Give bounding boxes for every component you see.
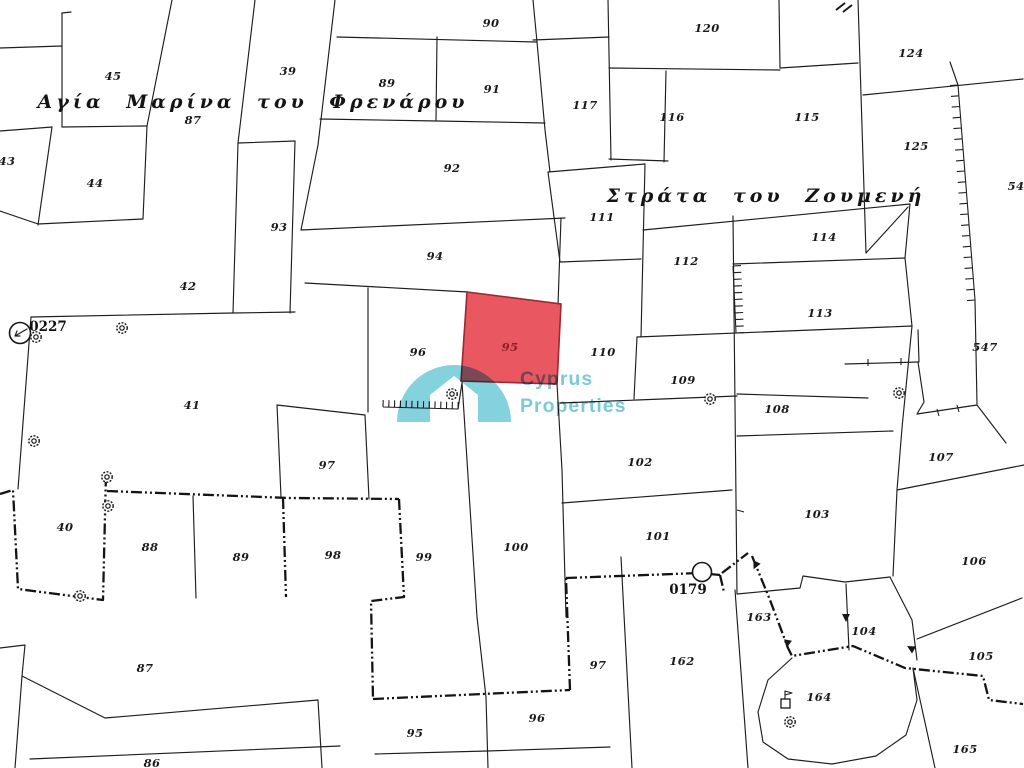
parcel-label-112: 112 (673, 254, 698, 268)
boundary-stone-icon (102, 472, 112, 482)
parcel-label-95: 95 (407, 726, 424, 740)
parcel-label-98: 98 (325, 548, 342, 562)
ref-point-label-0179: 0179 (669, 582, 707, 598)
parcel-label-97: 97 (319, 458, 336, 472)
parcel-label-96: 96 (410, 345, 427, 359)
parcel-label-120: 120 (694, 21, 719, 35)
parcel-label-103: 103 (804, 507, 829, 521)
parcel-label-125: 125 (903, 139, 928, 153)
parcel-label-101: 101 (645, 529, 670, 543)
boundary-stone-icon (29, 436, 39, 446)
parcel-label-99: 99 (416, 550, 433, 564)
street-name-strata: Στράτα του Ζουμενή (606, 185, 926, 207)
parcel-label-87: 87 (185, 113, 202, 127)
parcel-labels: 3945909189874344934292941171161201151241… (0, 16, 1024, 768)
street-name-agia-marina: Αγία Μαρίνα του Φρενάρου (36, 91, 469, 113)
fence-boundaries (0, 473, 1023, 704)
parcel-label-108: 108 (764, 402, 789, 416)
parcel-label-94: 94 (427, 249, 444, 263)
parcel-label-43: 43 (0, 154, 15, 168)
parcel-label-89: 89 (379, 76, 396, 90)
parcel-label-111: 111 (589, 210, 614, 224)
parcel-label-162: 162 (669, 654, 694, 668)
parcel-label-54: 54 (1008, 179, 1024, 193)
ref-point-label-0227: 0227 (29, 319, 67, 335)
parcel-label-104: 104 (851, 624, 876, 638)
well-icon (781, 691, 792, 708)
brand-text-line1: Cyprus (520, 368, 593, 390)
boundary-stone-icon (117, 323, 127, 333)
parcel-label-41: 41 (184, 398, 201, 412)
parcel-label-42: 42 (180, 279, 197, 293)
parcel-label-106: 106 (961, 554, 986, 568)
path-direction-arrow-icon (750, 560, 761, 571)
parcel-label-164: 164 (806, 690, 831, 704)
highlighted-parcel-label: 95 (502, 340, 519, 354)
parcel-label-124: 124 (898, 46, 923, 60)
parcel-label-93: 93 (271, 220, 288, 234)
parcel-label-102: 102 (627, 455, 652, 469)
parcel-label-90: 90 (483, 16, 500, 30)
parcel-label-100: 100 (503, 540, 528, 554)
boundary-stone-icon (705, 394, 715, 404)
boundary-stone-icon (894, 388, 904, 398)
parcel-label-114: 114 (811, 230, 836, 244)
parcel-label-110: 110 (590, 345, 615, 359)
control-point-circle-0227 (10, 323, 31, 344)
boundary-stone-icon (103, 501, 113, 511)
boundary-stone-icon (447, 389, 457, 399)
boundary-stone-icon (785, 717, 795, 727)
parcel-label-117: 117 (572, 98, 597, 112)
parcel-label-113: 113 (807, 306, 832, 320)
parcel-label-116: 116 (659, 110, 684, 124)
parcel-label-88: 88 (142, 540, 159, 554)
parcel-label-89: 89 (233, 550, 250, 564)
path-direction-arrow-icon (905, 643, 916, 654)
parcel-label-91: 91 (484, 82, 501, 96)
parcel-label-109: 109 (670, 373, 695, 387)
parcel-label-86: 86 (144, 756, 161, 768)
parcel-label-165: 165 (952, 742, 977, 756)
cadastral-map: 3945909189874344934292941171161201151241… (0, 0, 1024, 768)
path-direction-arrow-icon (842, 614, 850, 622)
control-point-circle-0179 (693, 563, 712, 582)
parcel-label-163: 163 (746, 610, 771, 624)
parcel-label-105: 105 (968, 649, 993, 663)
parcel-label-44: 44 (87, 176, 104, 190)
parcel-label-45: 45 (105, 69, 122, 83)
boundary-stone-icon (75, 591, 85, 601)
parcel-label-107: 107 (928, 450, 953, 464)
cadastral-map-canvas: 3945909189874344934292941171161201151241… (0, 0, 1024, 768)
parcel-label-39: 39 (280, 64, 297, 78)
parcel-label-547: 547 (972, 340, 997, 354)
parcel-label-96: 96 (529, 711, 546, 725)
parcel-label-115: 115 (794, 110, 819, 124)
parcel-label-97: 97 (590, 658, 607, 672)
brand-text-line2: Properties (520, 395, 626, 417)
parcel-label-40: 40 (57, 520, 74, 534)
parcel-label-87: 87 (137, 661, 154, 675)
parcel-label-92: 92 (444, 161, 461, 175)
road-dash-icon (836, 3, 852, 12)
